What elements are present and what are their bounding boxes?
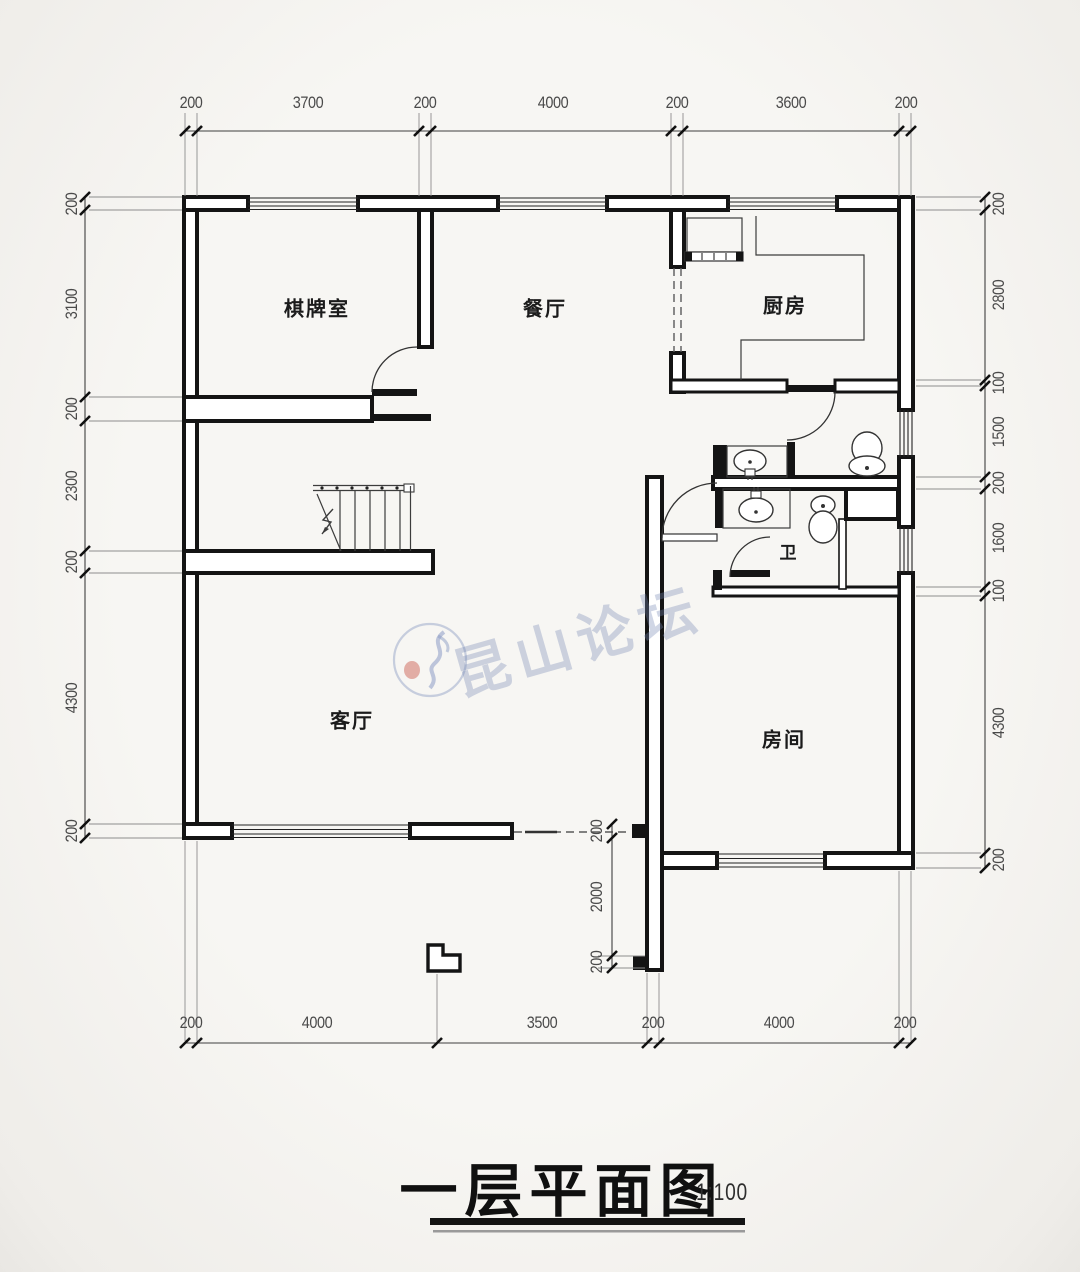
- dim-bottom-2: 3500: [527, 1013, 557, 1033]
- door-chess-room: [372, 347, 417, 396]
- kitchen-pass-window: [685, 252, 743, 261]
- room-label-bedroom: 房间: [762, 724, 806, 753]
- dim-left-6: 200: [62, 820, 82, 843]
- dim-right-1: 2800: [989, 280, 1009, 310]
- dim-right-5: 1600: [989, 523, 1009, 553]
- dim-top-2: 200: [414, 93, 437, 113]
- dim-top-3: 4000: [538, 93, 568, 113]
- window-living: [232, 825, 410, 838]
- dim-right-8: 200: [989, 849, 1009, 872]
- floor-plan-page: 棋牌室 餐厅 厨房 客厅 房间 卫 200 3700 200 4000 200 …: [0, 0, 1080, 1272]
- room-label-bath: 卫: [780, 539, 797, 564]
- dim-bottom-3: 200: [642, 1013, 665, 1033]
- dim-right-2: 100: [989, 372, 1009, 395]
- dim-left-3: 2300: [62, 471, 82, 501]
- dim-left-1: 3100: [62, 289, 82, 319]
- dim-top-4: 200: [666, 93, 689, 113]
- room-label-living: 客厅: [330, 705, 374, 734]
- dim-left-5: 4300: [62, 683, 82, 713]
- room-label-chess: 棋牌室: [284, 293, 350, 322]
- dim-bottom-1: 4000: [302, 1013, 332, 1033]
- window-top-chess: [248, 198, 358, 210]
- dim-left-2: 200: [62, 398, 82, 421]
- toilet-upper: [849, 432, 885, 476]
- dim-right-6: 100: [989, 580, 1009, 603]
- dim-right-3: 1500: [989, 417, 1009, 447]
- window-right-bath: [900, 527, 912, 573]
- window-top-kitchen: [728, 198, 837, 210]
- door-hall-lobby: [662, 483, 717, 541]
- window-top-dining: [498, 198, 607, 210]
- door-bath: [730, 537, 770, 577]
- dim-right-7: 4300: [989, 708, 1009, 738]
- dimension-lines: [80, 113, 990, 1048]
- dim-bottom-5: 200: [894, 1013, 917, 1033]
- kitchen-cabinet: [687, 218, 742, 252]
- room-label-dining: 餐厅: [523, 293, 567, 322]
- toilet-bath: [809, 496, 837, 543]
- dim-entry-0: 200: [587, 820, 607, 843]
- dim-right-4: 200: [989, 472, 1009, 495]
- dim-right-0: 200: [989, 193, 1009, 216]
- dim-bottom-0: 200: [180, 1013, 203, 1033]
- drawing-scale: 1:100: [696, 1179, 748, 1207]
- shower-cabinet: [846, 489, 898, 519]
- dim-top-1: 3700: [293, 93, 323, 113]
- dim-top-5: 3600: [776, 93, 806, 113]
- dim-top-0: 200: [180, 93, 203, 113]
- washbasin-bath: [723, 487, 790, 528]
- dim-top-6: 200: [895, 93, 918, 113]
- window-bedroom: [717, 854, 825, 867]
- window-right-washroom: [900, 410, 912, 457]
- room-label-kitchen: 厨房: [763, 290, 807, 319]
- dim-entry-2: 200: [587, 951, 607, 974]
- washbasin-upper: [727, 446, 787, 480]
- page-title: 一层平面图: [399, 1144, 724, 1228]
- door-kitchen: [787, 385, 835, 440]
- dim-bottom-4: 4000: [764, 1013, 794, 1033]
- opening-kitchen-dashed: [674, 268, 681, 352]
- dim-left-4: 200: [62, 551, 82, 574]
- dim-entry-1: 2000: [587, 882, 607, 912]
- dim-left-0: 200: [62, 193, 82, 216]
- staircase: [313, 484, 414, 551]
